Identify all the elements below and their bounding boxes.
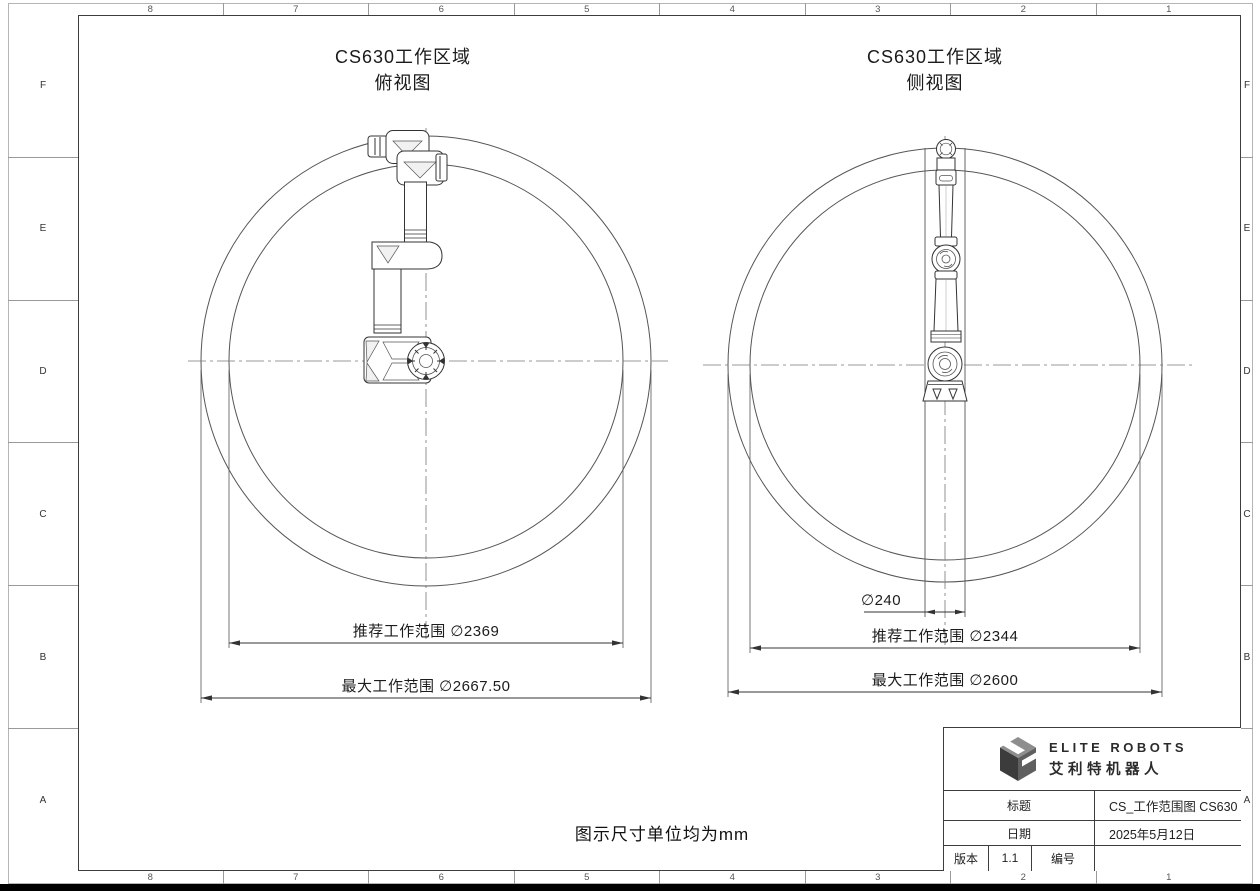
dim-recommended-top-view: 推荐工作范围 ∅2369: [229, 623, 623, 646]
dim-max-label: 最大工作范围 ∅2667.50: [342, 678, 511, 695]
elite-robots-cube-logo: [998, 736, 1038, 782]
number-label: 编号: [1031, 846, 1094, 871]
brand-row: ELITE ROBOTS 艾利特机器人: [944, 728, 1241, 790]
side-view: ∅240 推荐工作范围 ∅2344 最大工作范围 ∅2600: [703, 136, 1192, 697]
dim-recommended-side-view: 推荐工作范围 ∅2344: [750, 628, 1140, 651]
robot-side-view: [923, 140, 967, 402]
title-value: CS_工作范围图 CS630: [1094, 791, 1241, 820]
top-view: 推荐工作范围 ∅2369 最大工作范围 ∅2667.50: [188, 128, 668, 703]
wrist-circle: [937, 140, 956, 159]
title-block: ELITE ROBOTS 艾利特机器人 标题 CS_工作范围图 CS630 日期…: [943, 727, 1241, 871]
date-row: 日期 2025年5月12日: [944, 820, 1241, 845]
version-row: 版本 1.1 编号: [944, 845, 1241, 871]
title-row: 标题 CS_工作范围图 CS630: [944, 790, 1241, 820]
sheet-bottom-edge: [0, 884, 1260, 891]
drawing-sheet: 8 7 6 5 4 3 2 1 8 7 6 5 4 3 2 1 F E D C …: [0, 0, 1260, 891]
date-label: 日期: [944, 821, 1094, 845]
forearm-tube: [405, 182, 427, 242]
brand-name-zh: 艾利特机器人: [1049, 758, 1187, 779]
upper-arm-tube: [374, 269, 401, 333]
version-label: 版本: [944, 846, 988, 871]
dim-base-diameter: ∅240: [861, 592, 965, 614]
tool-flange: [368, 136, 388, 157]
dim-recommended-label: 推荐工作范围 ∅2369: [353, 623, 500, 640]
wrist-block: [937, 158, 955, 170]
brand-name-en: ELITE ROBOTS: [1049, 740, 1187, 755]
robot-top-view: [364, 131, 447, 384]
version-value: 1.1: [988, 846, 1031, 871]
dim-max-side-view: 最大工作范围 ∅2600: [728, 672, 1162, 695]
dim-max-label: 最大工作范围 ∅2600: [872, 672, 1019, 689]
number-value: [1094, 846, 1241, 871]
title-label: 标题: [944, 791, 1094, 820]
date-value: 2025年5月12日: [1094, 821, 1241, 845]
dim-max-top-view: 最大工作范围 ∅2667.50: [201, 678, 651, 701]
base-mount: [923, 381, 967, 401]
units-note: 图示尺寸单位均为mm: [575, 820, 749, 845]
dim-base-label: ∅240: [861, 592, 901, 609]
dim-recommended-label: 推荐工作范围 ∅2344: [872, 628, 1019, 645]
